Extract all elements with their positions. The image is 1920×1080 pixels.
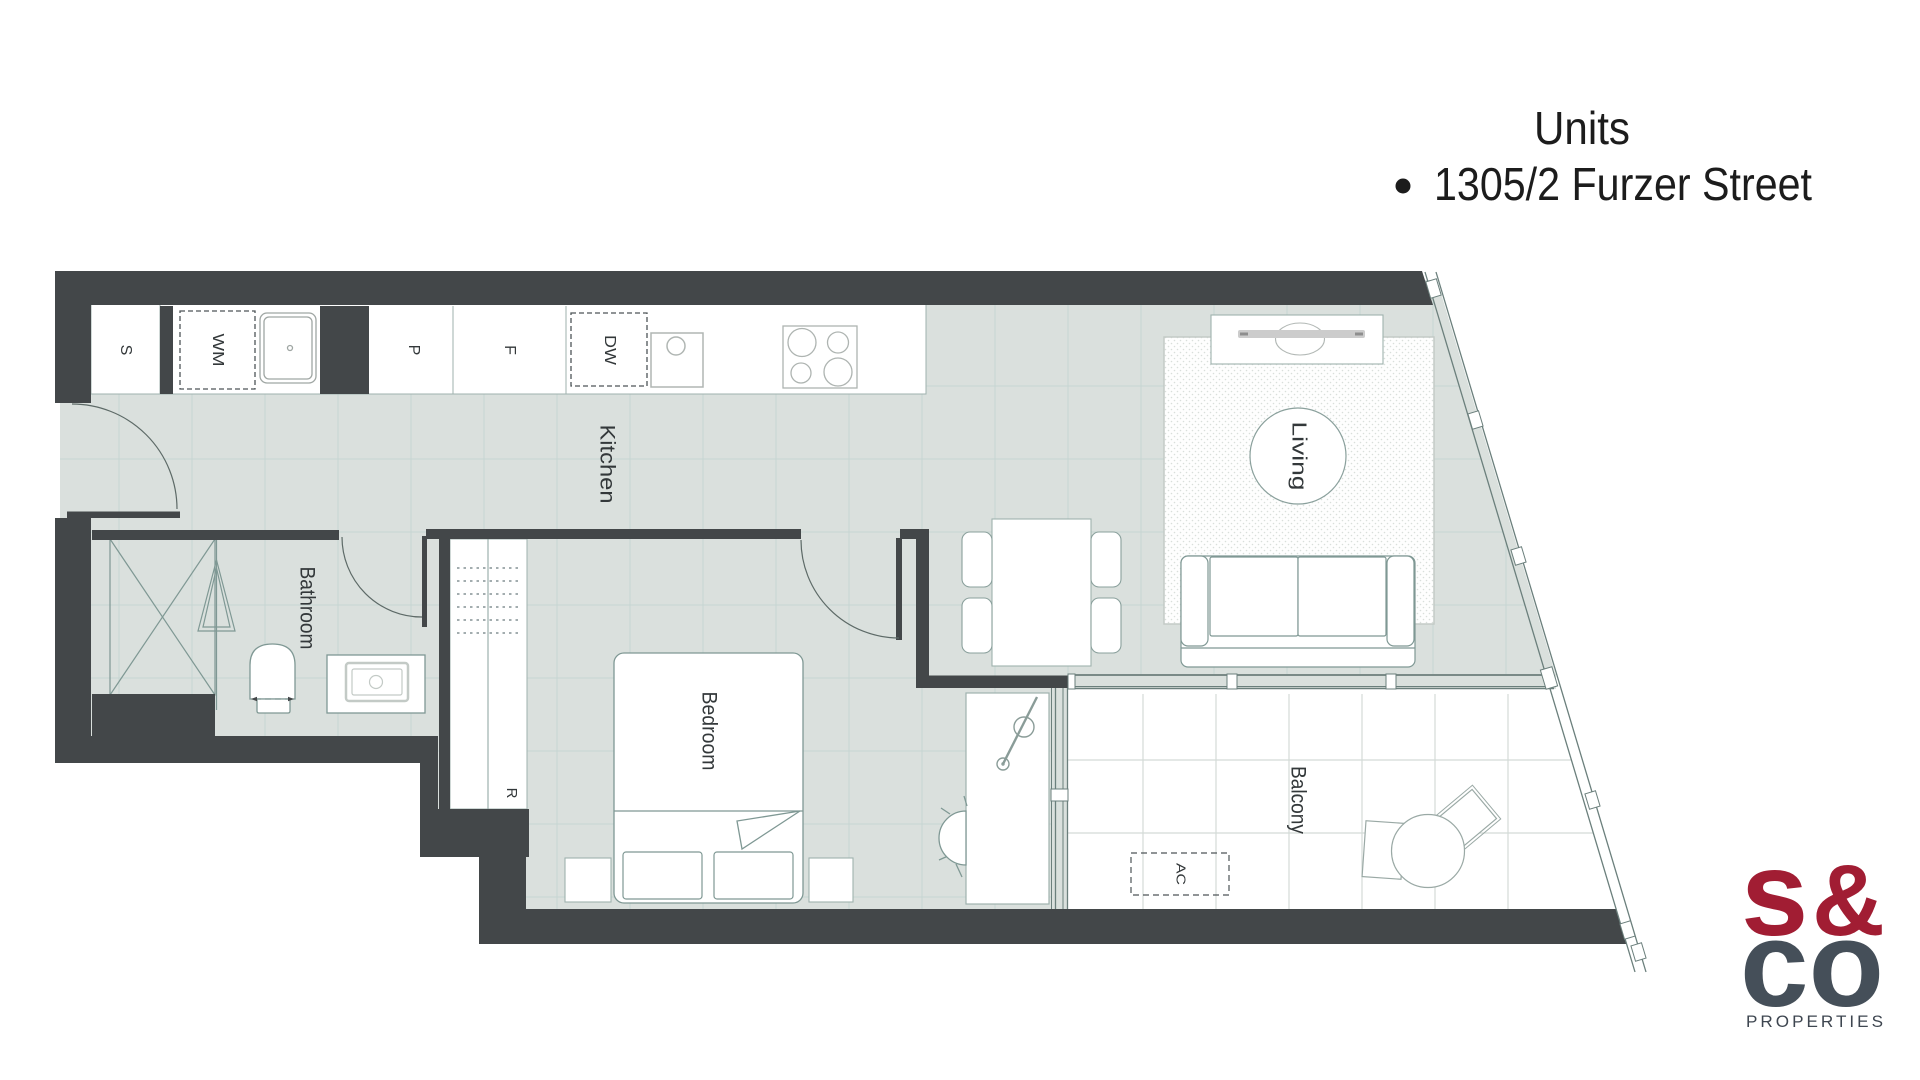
svg-text:Units: Units	[1534, 102, 1630, 154]
svg-text:1305/2 Furzer Street: 1305/2 Furzer Street	[1434, 158, 1812, 210]
svg-text:F: F	[501, 345, 518, 355]
svg-text:Bedroom: Bedroom	[697, 692, 720, 771]
svg-text:Kitchen: Kitchen	[595, 425, 618, 504]
svg-text:R: R	[503, 788, 520, 799]
svg-text:Living: Living	[1288, 422, 1310, 491]
svg-text:AC: AC	[1174, 863, 1189, 885]
svg-text:WM: WM	[209, 334, 226, 367]
svg-text:P: P	[405, 345, 422, 356]
svg-text:PROPERTIES: PROPERTIES	[1746, 1012, 1886, 1031]
svg-text:S: S	[117, 345, 134, 356]
svg-text:DW: DW	[601, 335, 618, 366]
svg-text:Balcony: Balcony	[1286, 766, 1309, 834]
svg-text:Bathroom: Bathroom	[295, 567, 318, 650]
